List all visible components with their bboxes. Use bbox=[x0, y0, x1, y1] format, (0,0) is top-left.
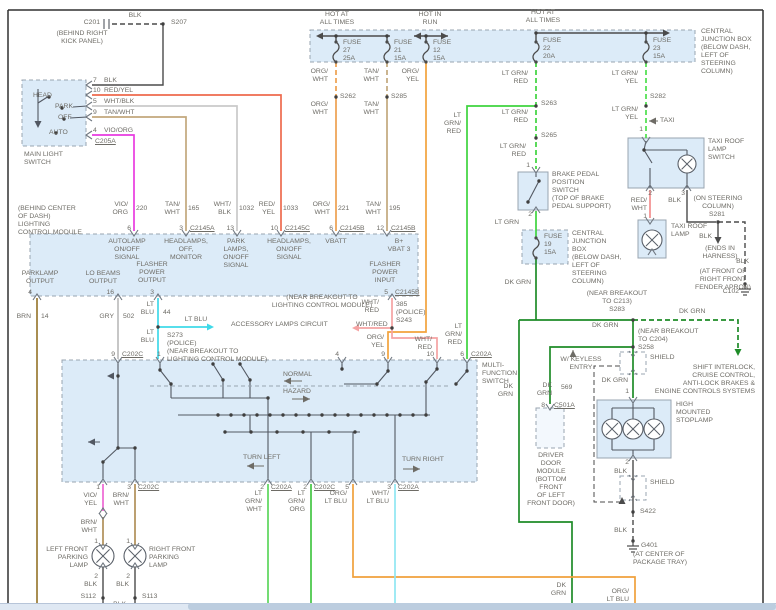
fuse-terminal bbox=[534, 40, 537, 43]
junction-dot bbox=[644, 31, 647, 34]
junction-dot bbox=[229, 413, 232, 416]
junction-dot bbox=[101, 596, 104, 599]
junction-dot bbox=[465, 369, 468, 372]
junction-dot bbox=[248, 378, 251, 381]
junction-dot bbox=[216, 413, 219, 416]
junction-dot bbox=[534, 136, 537, 139]
lighting-control-module-box bbox=[30, 234, 418, 296]
junction-dot bbox=[534, 104, 537, 107]
junction-dot bbox=[340, 367, 343, 370]
junction-dot bbox=[266, 396, 269, 399]
junction-dot bbox=[411, 413, 414, 416]
fuse-terminal bbox=[644, 40, 647, 43]
fuse-terminal bbox=[534, 236, 537, 239]
junction-dot bbox=[116, 446, 119, 449]
arrowhead bbox=[352, 325, 359, 332]
central-junction-box-top bbox=[310, 30, 695, 62]
junction-dot bbox=[435, 367, 438, 370]
fuse-terminal bbox=[534, 60, 537, 63]
wire-dk-grn-left-to-bottom bbox=[519, 320, 572, 610]
wire-tan-wht-off-monitor bbox=[92, 117, 186, 231]
junction-dot bbox=[334, 34, 337, 37]
junction-dot bbox=[158, 368, 161, 371]
junction-dot bbox=[385, 413, 388, 416]
junction-dot bbox=[353, 430, 356, 433]
diagram-canvas bbox=[0, 0, 776, 610]
connector-pin bbox=[86, 131, 92, 139]
connector-pin bbox=[86, 113, 92, 121]
fuse-terminal bbox=[424, 60, 427, 63]
junction-dot bbox=[424, 413, 427, 416]
junction-dot bbox=[221, 378, 224, 381]
junction-dot bbox=[327, 430, 330, 433]
arrowhead bbox=[715, 237, 722, 244]
fuse-terminal bbox=[385, 40, 388, 43]
junction-dot bbox=[242, 413, 245, 416]
junction-dot bbox=[249, 430, 252, 433]
fuse-19-junction-box bbox=[522, 230, 568, 264]
junction-dot bbox=[424, 380, 427, 383]
junction-dot bbox=[320, 413, 323, 416]
junction-dot bbox=[156, 325, 159, 328]
junction-dot bbox=[238, 362, 241, 365]
wire-wht-red-flasher-in bbox=[392, 298, 437, 359]
connector-pin bbox=[86, 81, 92, 89]
junction-dot bbox=[390, 326, 393, 329]
junction-dot bbox=[169, 382, 172, 385]
junction-dot bbox=[631, 345, 634, 348]
junction-dot bbox=[424, 34, 427, 37]
wire-blk-taxi-switch bbox=[687, 190, 716, 222]
junction-dot bbox=[60, 106, 63, 109]
wire-blk-s281-c102-dash bbox=[718, 222, 745, 286]
fuse-terminal bbox=[644, 60, 647, 63]
junction-dot bbox=[534, 31, 537, 34]
main-light-switch-box bbox=[22, 80, 86, 146]
brake-pedal-position-switch-box bbox=[518, 172, 548, 210]
junction-dot bbox=[223, 430, 226, 433]
junction-dot bbox=[359, 413, 362, 416]
junction-dot bbox=[631, 510, 634, 513]
arrowhead bbox=[570, 350, 577, 357]
wire-s207-switch-blk bbox=[92, 24, 163, 85]
fuse-terminal bbox=[334, 60, 337, 63]
junction-dot bbox=[301, 430, 304, 433]
wire-dk-grn-to-door-module bbox=[550, 347, 633, 404]
junction-dot bbox=[454, 382, 457, 385]
wire-dk-grn-to-systems-dash bbox=[633, 320, 738, 352]
junction-dot bbox=[47, 95, 50, 98]
arrowhead bbox=[649, 118, 656, 125]
junction-dot bbox=[54, 131, 57, 134]
fuse-terminal bbox=[385, 60, 388, 63]
junction-dot bbox=[385, 95, 388, 98]
junction-dot bbox=[133, 446, 136, 449]
junction-dot bbox=[275, 430, 278, 433]
wire-vio-org-autolamp bbox=[92, 135, 134, 231]
connector-pin bbox=[86, 91, 92, 99]
junction-dot bbox=[537, 179, 540, 182]
driver-door-module-box bbox=[536, 408, 564, 448]
junction-dot bbox=[372, 413, 375, 416]
junction-dot bbox=[268, 413, 271, 416]
junction-dot bbox=[526, 200, 529, 203]
connector-pin bbox=[86, 102, 92, 110]
junction-dot bbox=[133, 596, 136, 599]
junction-dot bbox=[375, 382, 378, 385]
junction-dot bbox=[116, 374, 119, 377]
horizontal-scrollbar-thumb[interactable] bbox=[188, 603, 776, 610]
wiring-diagram-page: C201BLKS207(BEHIND RIGHT KICK PANEL)7BLK… bbox=[0, 0, 776, 610]
junction-dot bbox=[385, 34, 388, 37]
junction-dot bbox=[101, 460, 104, 463]
junction-dot bbox=[716, 220, 719, 223]
fuse-terminal bbox=[424, 40, 427, 43]
junction-dot bbox=[398, 413, 401, 416]
junction-dot bbox=[346, 413, 349, 416]
junction-dot bbox=[631, 318, 634, 321]
arrowhead bbox=[735, 349, 742, 356]
junction-dot bbox=[333, 413, 336, 416]
junction-dot bbox=[281, 413, 284, 416]
fuse-terminal bbox=[334, 40, 337, 43]
fuse-terminal bbox=[534, 256, 537, 259]
multi-function-switch-box bbox=[62, 360, 477, 482]
junction-dot bbox=[211, 362, 214, 365]
junction-dot bbox=[307, 413, 310, 416]
junction-dot bbox=[62, 117, 65, 120]
junction-dot bbox=[644, 104, 647, 107]
wire-org-yel-fuse12 bbox=[388, 62, 426, 359]
connector-pin bbox=[99, 513, 107, 519]
junction-dot bbox=[334, 95, 337, 98]
junction-dot bbox=[386, 369, 389, 372]
junction-dot bbox=[255, 413, 258, 416]
junction-dot bbox=[642, 148, 645, 151]
junction-dot bbox=[161, 22, 164, 25]
wire-wht-blk-park-signal bbox=[92, 106, 237, 231]
arrowhead bbox=[207, 324, 214, 331]
junction-dot bbox=[294, 413, 297, 416]
